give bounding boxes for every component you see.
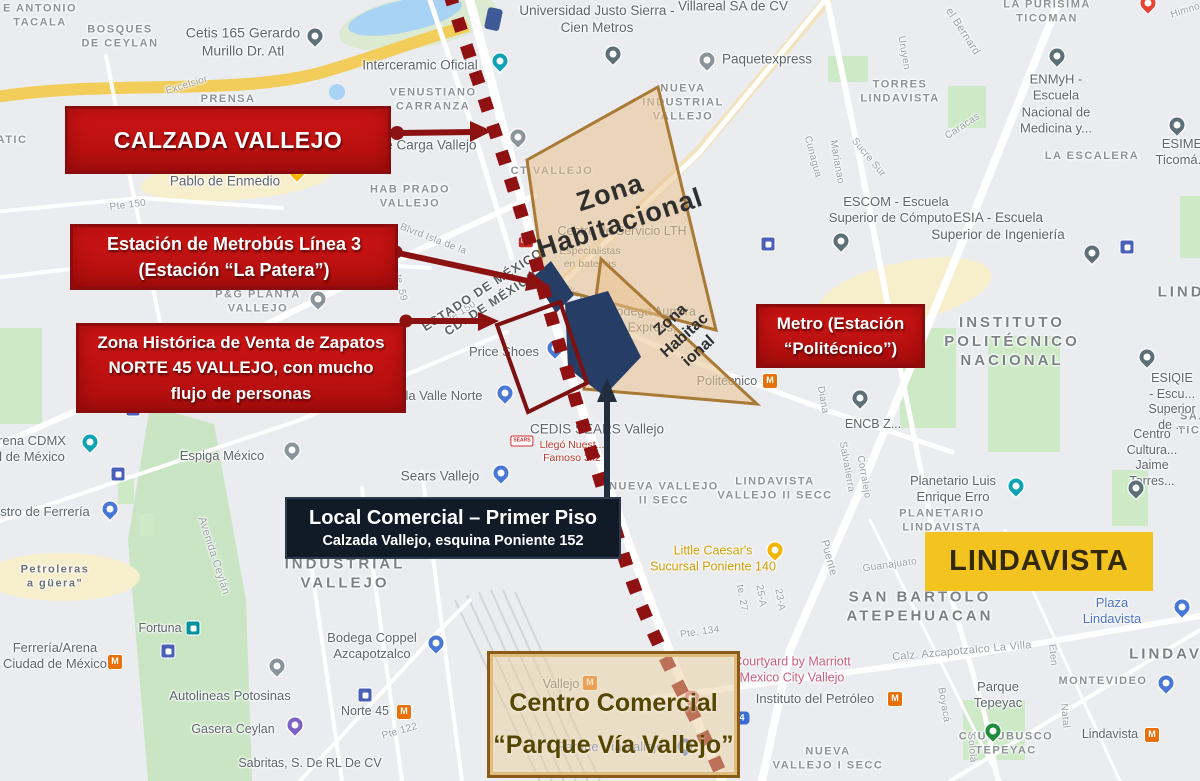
callout-text: Local Comercial – Primer Piso xyxy=(287,507,619,530)
callout-text: Zona Histórica de Venta de Zapatos xyxy=(97,330,384,356)
callout-lindavista: LINDAVISTA xyxy=(925,532,1153,591)
callout-text: “Politécnico”) xyxy=(784,336,897,362)
callout-calzada-vallejo: CALZADA VALLEJO xyxy=(65,106,391,174)
callout-arrows xyxy=(390,121,550,331)
callout-text: Centro Comercial xyxy=(490,689,737,718)
callout-text: Calzada Vallejo, esquina Poniente 152 xyxy=(287,533,619,549)
callout-text: LINDAVISTA xyxy=(949,545,1129,578)
callout-text: flujo de personas xyxy=(171,381,312,407)
callout-text: “Parque Vía Vallejo” xyxy=(490,731,737,760)
callout-metro-politecnico: Metro (Estación “Politécnico”) xyxy=(756,304,925,368)
callout-text: NORTE 45 VALLEJO, con mucho xyxy=(108,355,373,381)
transit-building-icon xyxy=(484,7,503,32)
callout-text: (Estación “La Patera”) xyxy=(138,257,329,283)
callout-text: CALZADA VALLEJO xyxy=(114,127,343,154)
callout-metrobus-linea3: Estación de Metrobús Línea 3 (Estación “… xyxy=(70,224,398,290)
callout-zona-historica: Zona Histórica de Venta de Zapatos NORTE… xyxy=(76,323,406,413)
map-canvas[interactable]: E ANTONIO TACALABOSQUES DE CEYLANATICPRE… xyxy=(0,0,1200,781)
callout-centro-comercial: Centro Comercial “Parque Vía Vallejo” xyxy=(487,651,740,778)
callout-text: Metro (Estación xyxy=(777,311,905,337)
callout-local-comercial: Local Comercial – Primer Piso Calzada Va… xyxy=(285,497,621,559)
callout-text: Estación de Metrobús Línea 3 xyxy=(107,231,361,257)
